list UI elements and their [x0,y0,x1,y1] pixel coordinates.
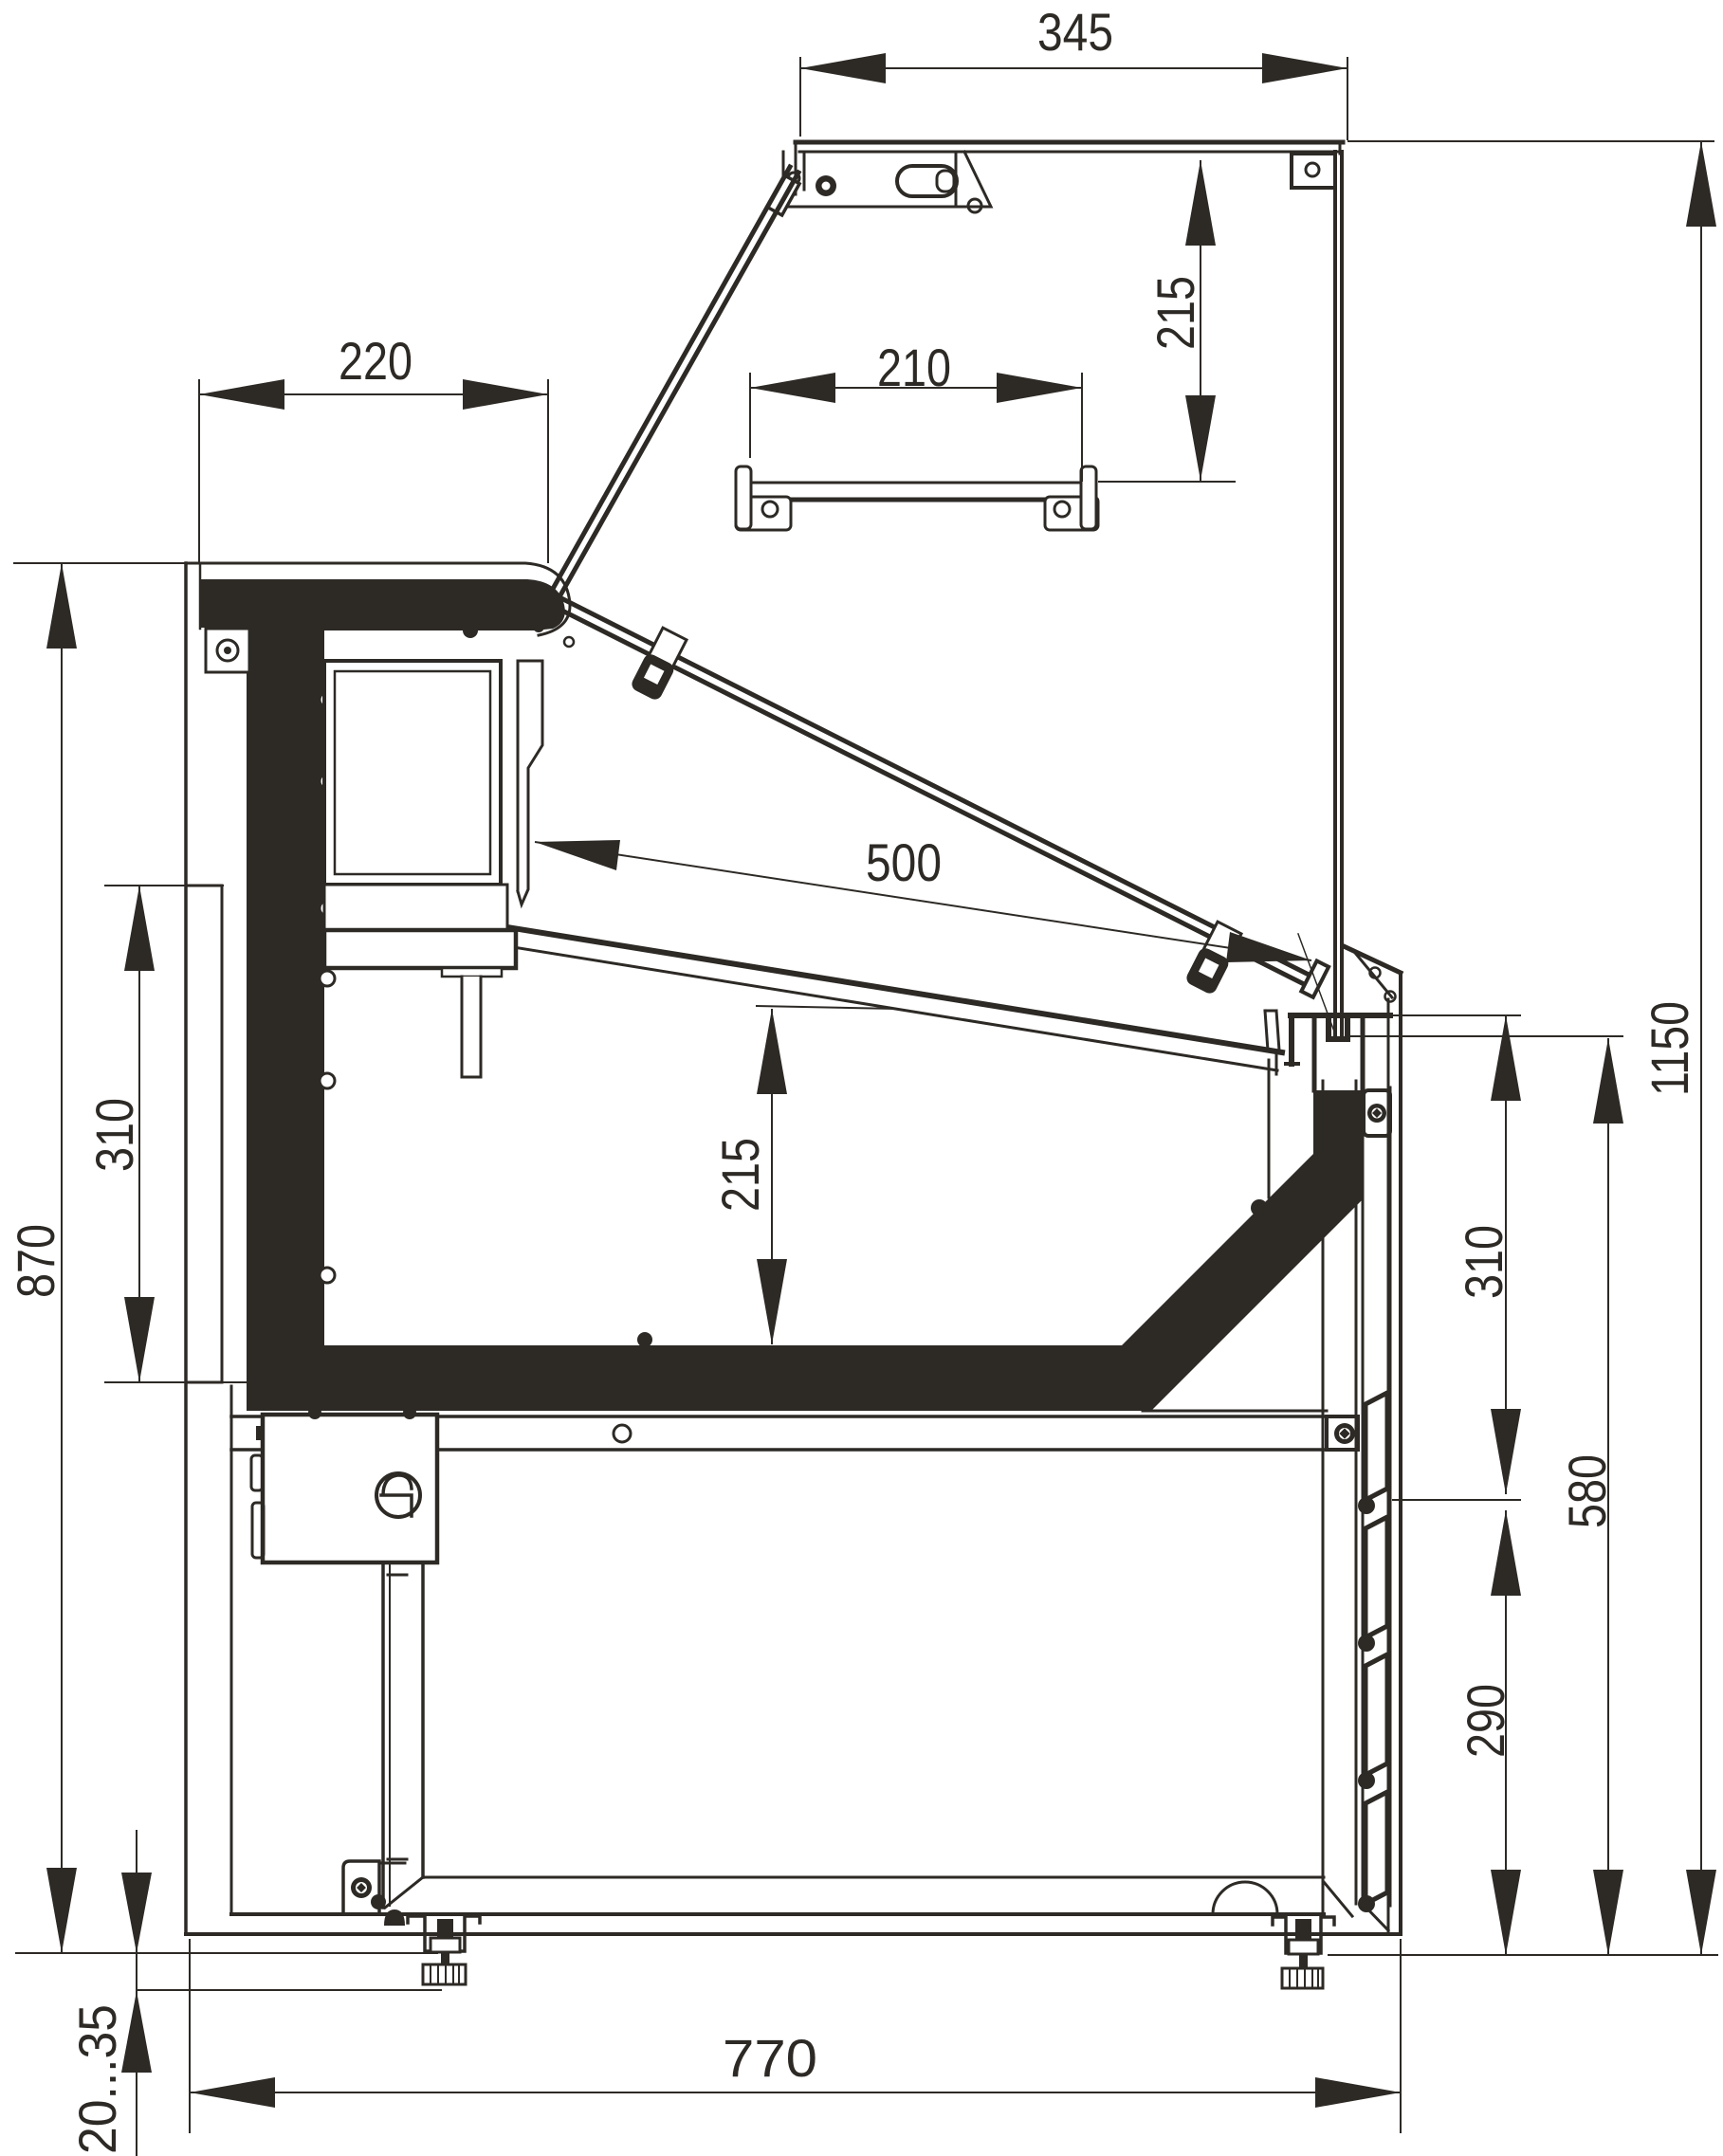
svg-text:1150: 1150 [1640,1001,1699,1096]
svg-text:580: 580 [1557,1454,1617,1528]
svg-text:210: 210 [877,338,951,397]
svg-text:310: 310 [84,1098,144,1172]
svg-text:215: 215 [1146,276,1205,350]
svg-text:220: 220 [339,331,412,391]
svg-text:310: 310 [1454,1225,1513,1299]
svg-text:20...35: 20...35 [67,2004,127,2154]
svg-text:770: 770 [723,2028,817,2088]
svg-text:345: 345 [1037,2,1113,62]
svg-text:290: 290 [1456,1684,1515,1758]
svg-text:870: 870 [6,1224,65,1298]
svg-text:500: 500 [866,832,942,892]
svg-text:215: 215 [710,1138,770,1212]
